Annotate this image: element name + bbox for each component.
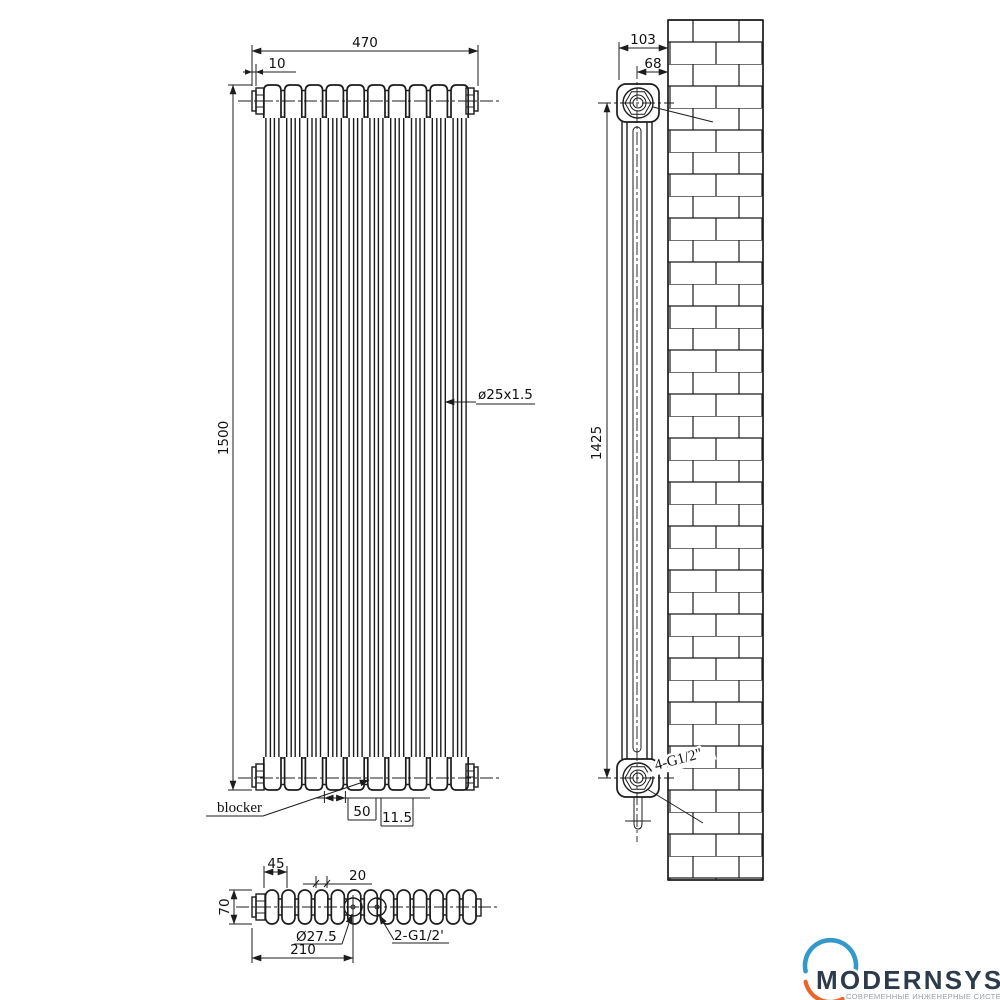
radiator-columns xyxy=(264,85,468,790)
tube-spec-label: ø25x1.5 xyxy=(478,387,533,403)
brand-text: MODERNSYS xyxy=(816,965,1000,995)
inlets-label: 2-G1/2' xyxy=(394,928,444,944)
logo: MODERNSYS СОВРЕМЕННЫЕ ИНЖЕНЕРНЫЕ СИСТЕМЫ xyxy=(805,940,1000,1000)
dim-11-5-label: 11.5 xyxy=(382,810,412,826)
dim-70-label: 70 xyxy=(217,898,233,915)
dim-470-label: 470 xyxy=(352,35,378,51)
dim-overall-width: 470 xyxy=(252,35,478,86)
top-view: 45 20 70 Ø27.5 210 2 xyxy=(217,856,500,963)
blocker-label: blocker xyxy=(217,800,262,816)
end-cap-bottom-left xyxy=(252,764,264,790)
brand-tagline: СОВРЕМЕННЫЕ ИНЖЕНЕРНЫЕ СИСТЕМЫ xyxy=(846,992,1000,1000)
dim-end-45: 45 xyxy=(264,856,287,888)
callout-inlet-diameter: Ø27.5 xyxy=(294,914,352,945)
dim-wall-distance-68: 68 xyxy=(637,56,668,72)
dim-210-label: 210 xyxy=(290,942,316,958)
dim-20-label: 20 xyxy=(349,868,366,884)
dim-68-label: 68 xyxy=(644,56,661,72)
dim-overall-height: 1500 xyxy=(216,85,252,790)
dim-10-label: 10 xyxy=(268,56,285,72)
dim-pitch-20: 20 xyxy=(303,868,372,888)
dim-50-label: 50 xyxy=(353,804,370,820)
dim-bottom-inlets: 50 11.5 xyxy=(315,791,430,826)
dim-103-label: 103 xyxy=(630,32,656,48)
end-cap-top-left xyxy=(252,88,264,114)
front-view: 470 10 1500 ø25x1.5 blocker xyxy=(206,35,535,826)
dim-1500-label: 1500 xyxy=(216,421,232,455)
dim-1425-label: 1425 xyxy=(589,426,605,460)
callout-tube-spec: ø25x1.5 xyxy=(445,387,535,404)
technical-drawing-canvas: 470 10 1500 ø25x1.5 blocker xyxy=(0,0,1000,1000)
dim-45-label: 45 xyxy=(267,856,284,872)
dim-cap-width: 10 xyxy=(243,56,296,86)
dim-height-1425: 1425 xyxy=(589,103,607,778)
